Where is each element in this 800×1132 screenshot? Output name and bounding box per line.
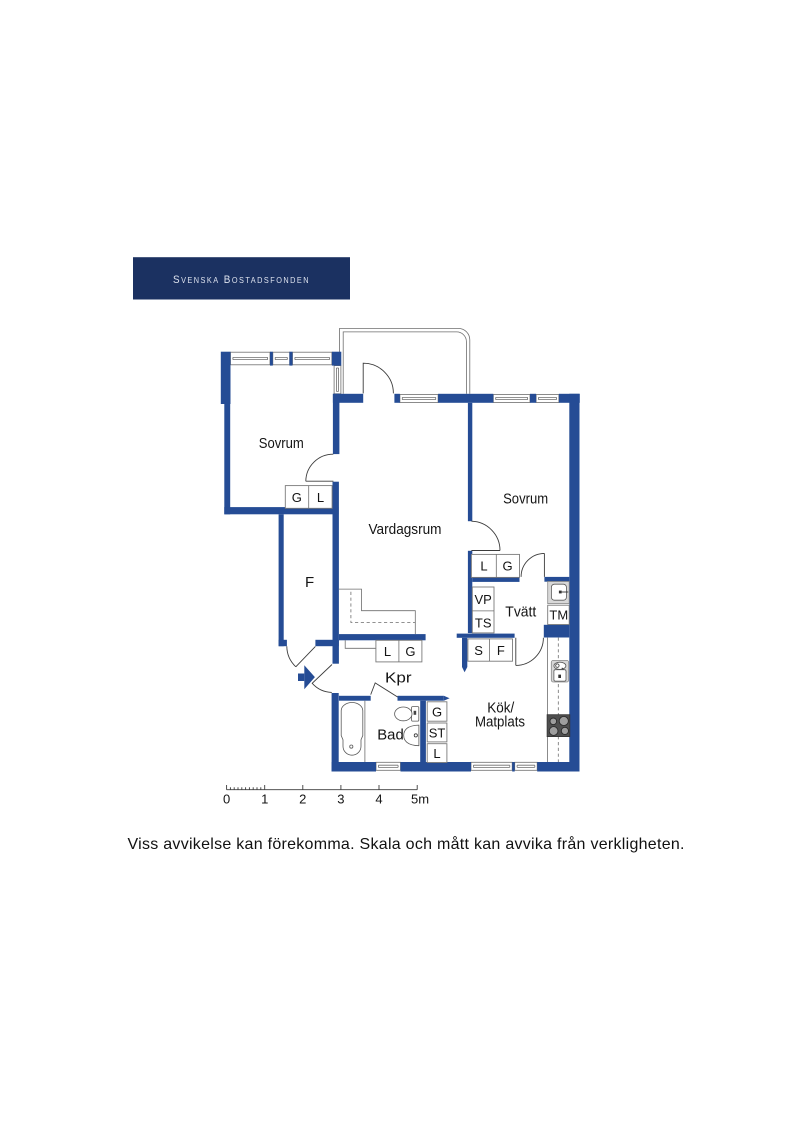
svg-text:2: 2	[299, 792, 306, 807]
svg-text:G: G	[432, 704, 442, 719]
svg-text:S: S	[474, 643, 483, 658]
svg-text:1: 1	[261, 792, 268, 807]
svg-text:VP: VP	[475, 592, 492, 607]
svg-text:TM: TM	[549, 608, 568, 623]
svg-text:L: L	[480, 559, 487, 574]
svg-text:Bad: Bad	[377, 726, 404, 743]
svg-text:L: L	[433, 746, 440, 761]
svg-text:Matplats: Matplats	[475, 714, 525, 731]
svg-text:4: 4	[375, 792, 382, 807]
svg-text:Svenska Bostadsfonden: Svenska Bostadsfonden	[173, 274, 310, 286]
svg-text:0: 0	[223, 792, 230, 807]
svg-text:G: G	[292, 490, 302, 505]
svg-text:ST: ST	[429, 725, 446, 740]
svg-text:Viss avvikelse kan förekomma.: Viss avvikelse kan förekomma. Skala och …	[128, 835, 685, 853]
svg-text:Sovrum: Sovrum	[259, 435, 304, 452]
svg-text:L: L	[317, 490, 324, 505]
svg-text:F: F	[305, 574, 314, 591]
svg-text:Sovrum: Sovrum	[503, 490, 548, 507]
svg-text:G: G	[503, 559, 513, 574]
svg-text:TS: TS	[475, 615, 492, 630]
svg-text:5m: 5m	[411, 792, 429, 807]
svg-text:G: G	[405, 644, 415, 659]
svg-text:Tvätt: Tvätt	[505, 603, 537, 620]
svg-text:3: 3	[337, 792, 344, 807]
svg-text:Kpr: Kpr	[385, 670, 412, 687]
svg-text:L: L	[384, 644, 391, 659]
svg-text:Vardagsrum: Vardagsrum	[369, 521, 442, 538]
svg-text:F: F	[497, 643, 505, 658]
